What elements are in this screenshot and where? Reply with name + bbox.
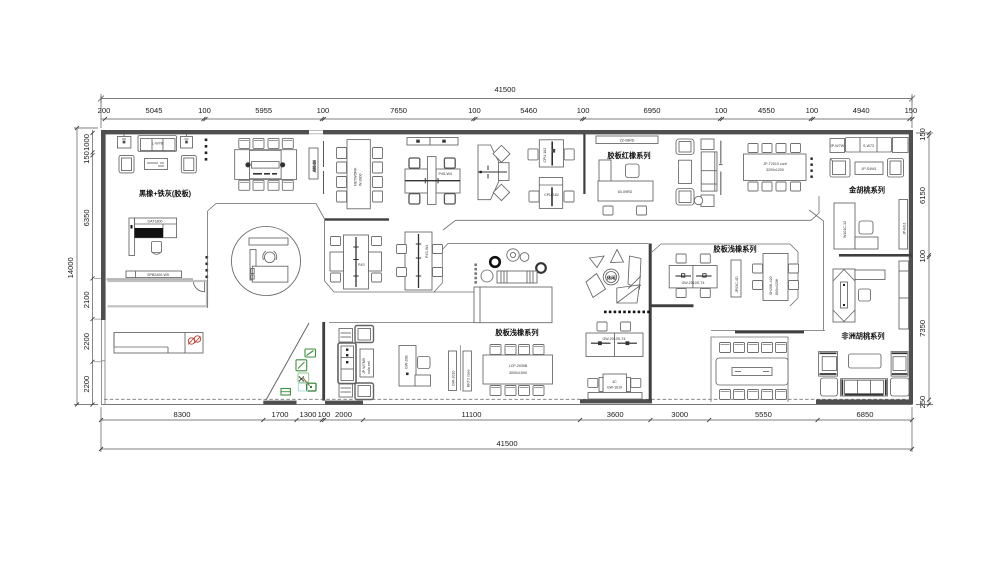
svg-text:JP-S4W1: JP-S4W1 (861, 167, 876, 171)
svg-text:CPU-162: CPU-162 (544, 193, 559, 197)
svg-text:6150: 6150 (918, 187, 927, 204)
svg-text:P4S: P4S (358, 263, 365, 267)
svg-text:60-09RD: 60-09RD (618, 190, 633, 194)
svg-text:胶板浅橡系列: 胶板浅橡系列 (495, 328, 538, 337)
svg-text:NETWORK: NETWORK (354, 167, 358, 186)
svg-text:2100: 2100 (82, 291, 91, 308)
svg-text:6350: 6350 (82, 209, 91, 226)
svg-text:6850: 6850 (857, 410, 874, 419)
svg-text:8300: 8300 (174, 410, 191, 419)
svg-text:100: 100 (715, 106, 728, 115)
svg-text:1700: 1700 (272, 410, 289, 419)
svg-text:150: 150 (905, 106, 918, 115)
svg-text:800x420H: 800x420H (775, 278, 779, 295)
svg-text:GW-1610: GW-1610 (607, 386, 622, 390)
svg-text:胶板浅橡系列: 胶板浅橡系列 (713, 245, 756, 254)
svg-text:4940: 4940 (853, 106, 870, 115)
svg-text:胶板红橡系列: 胶板红橡系列 (607, 151, 650, 160)
svg-text:BKT2 case: BKT2 case (467, 369, 471, 387)
svg-text:GW-20B: GW-20B (405, 355, 409, 369)
svg-text:5550: 5550 (755, 410, 772, 419)
svg-text:L-W7B: L-W7B (152, 142, 164, 146)
svg-text:100: 100 (198, 106, 211, 115)
svg-text:3600: 3600 (607, 410, 624, 419)
svg-text:JP-W7W: JP-W7W (830, 144, 845, 148)
svg-text:6950: 6950 (644, 106, 661, 115)
svg-text:SPB2400-W9: SPB2400-W9 (147, 273, 169, 277)
svg-text:JP03C-4D: JP03C-4D (735, 276, 739, 293)
svg-text:1000: 1000 (82, 134, 91, 151)
svg-text:ZZ-08RD: ZZ-08RD (620, 139, 635, 143)
svg-text:2200: 2200 (82, 376, 91, 393)
svg-text:sofa set: sofa set (367, 361, 371, 374)
svg-text:7350: 7350 (918, 320, 927, 337)
svg-text:P4S-W4: P4S-W4 (425, 245, 429, 258)
svg-text:金胡桃系列: 金胡桃系列 (848, 186, 885, 195)
svg-text:黑橡+铁灰(胶板): 黑橡+铁灰(胶板) (139, 189, 192, 198)
svg-text:3200x1200: 3200x1200 (766, 168, 784, 172)
svg-text:LCP-2030B: LCP-2030B (509, 364, 528, 368)
svg-text:休闲: 休闲 (606, 274, 616, 281)
svg-text:5045: 5045 (146, 106, 163, 115)
svg-text:W101C-32: W101C-32 (843, 221, 847, 238)
svg-text:A90-24: A90-24 (313, 160, 317, 172)
svg-text:200: 200 (98, 106, 111, 115)
svg-text:14000: 14000 (66, 257, 75, 278)
svg-text:11100: 11100 (462, 410, 482, 419)
svg-text:100: 100 (806, 106, 819, 115)
svg-text:JP-T2010 conf: JP-T2010 conf (763, 162, 786, 166)
svg-text:5955: 5955 (255, 106, 272, 115)
svg-text:1300: 1300 (300, 410, 317, 419)
svg-text:GW-2010: GW-2010 (452, 371, 456, 386)
svg-text:JP-BG1: JP-BG1 (903, 222, 907, 235)
svg-text:7650: 7650 (390, 106, 407, 115)
svg-text:4C: 4C (612, 380, 617, 384)
svg-text:2000: 2000 (335, 410, 352, 419)
svg-text:GW-2010S-T4: GW-2010S-T4 (681, 281, 704, 285)
svg-text:SH20K-420: SH20K-420 (769, 276, 773, 295)
svg-text:100: 100 (918, 250, 927, 263)
svg-text:3000x1500: 3000x1500 (509, 371, 527, 375)
svg-text:3000: 3000 (671, 410, 688, 419)
svg-text:100: 100 (577, 106, 590, 115)
svg-text:P4S-W4: P4S-W4 (439, 172, 452, 176)
svg-text:150: 150 (918, 128, 927, 141)
svg-text:S-W73: S-W73 (863, 144, 874, 148)
svg-text:2200: 2200 (82, 333, 91, 350)
svg-text:非洲胡桃系列: 非洲胡桃系列 (841, 332, 884, 341)
svg-text:JP-W7M9: JP-W7M9 (362, 358, 366, 374)
svg-text:41500: 41500 (494, 85, 515, 94)
svg-text:DAT1800: DAT1800 (148, 220, 163, 224)
svg-text:5460: 5460 (520, 106, 537, 115)
svg-text:41500: 41500 (496, 439, 517, 448)
svg-text:100: 100 (317, 106, 330, 115)
svg-text:150: 150 (82, 151, 91, 164)
svg-text:W-2800: W-2800 (359, 173, 363, 186)
svg-text:100: 100 (318, 410, 331, 419)
svg-text:100: 100 (468, 106, 481, 115)
svg-text:250: 250 (918, 396, 927, 409)
svg-text:4550: 4550 (758, 106, 775, 115)
svg-text:GW-2010S-T4: GW-2010S-T4 (602, 337, 625, 341)
svg-text:CPU-162: CPU-162 (543, 148, 547, 163)
